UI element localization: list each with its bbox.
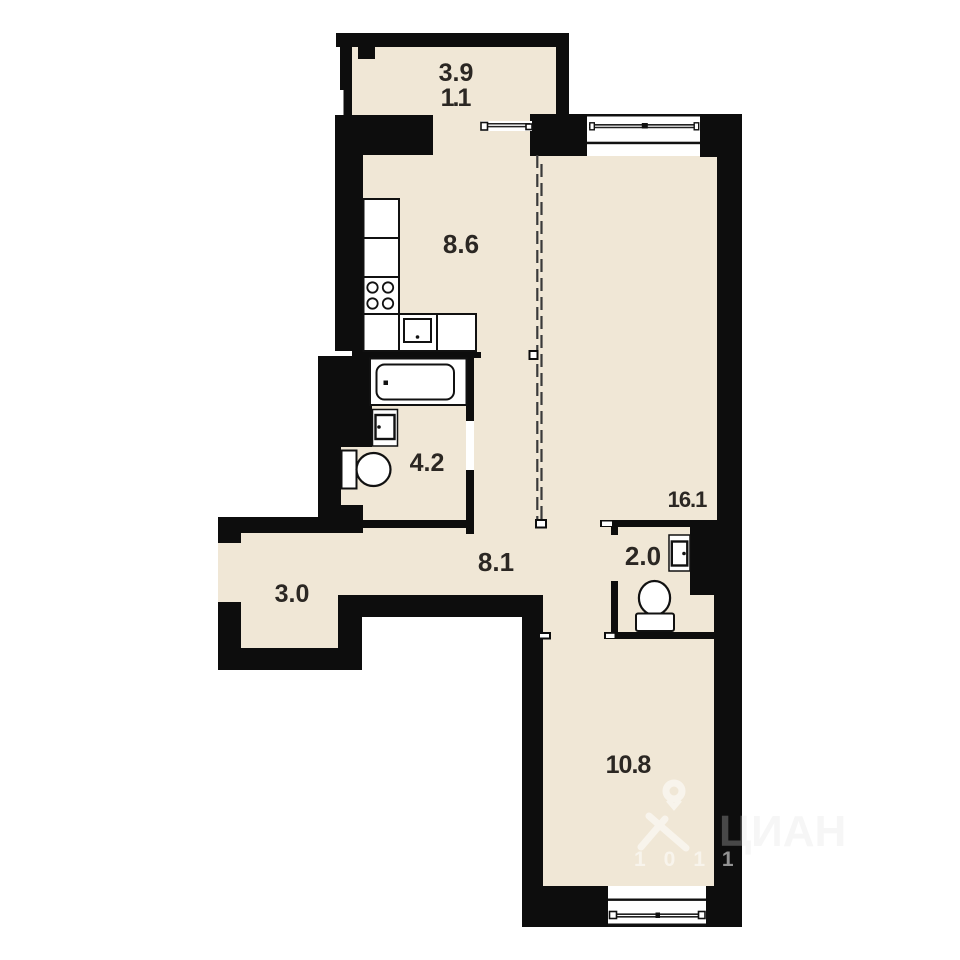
svg-text:16.1: 16.1 — [668, 487, 708, 512]
svg-text:8.1: 8.1 — [478, 547, 514, 577]
svg-text:1.1: 1.1 — [441, 84, 472, 112]
svg-text:4.2: 4.2 — [410, 449, 445, 477]
svg-text:1011: 1011 — [634, 848, 752, 871]
svg-text:3.0: 3.0 — [275, 580, 310, 608]
svg-text:10.8: 10.8 — [606, 751, 652, 779]
svg-text:8.6: 8.6 — [443, 229, 479, 259]
svg-text:2.0: 2.0 — [625, 541, 661, 571]
svg-text:3.9: 3.9 — [439, 59, 474, 87]
